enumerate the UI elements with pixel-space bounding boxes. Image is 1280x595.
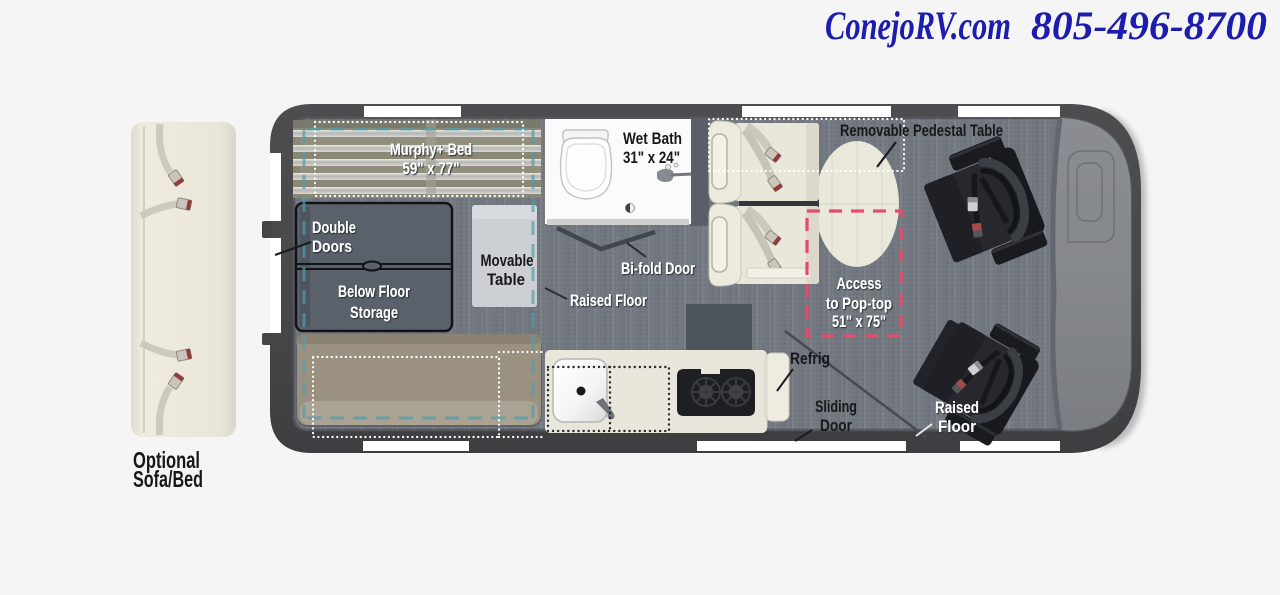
svg-text:Refrig: Refrig xyxy=(790,349,830,368)
svg-text:805-496-8700: 805-496-8700 xyxy=(1031,3,1267,48)
svg-text:Door: Door xyxy=(820,416,852,435)
svg-text:Below Floor: Below Floor xyxy=(338,282,410,301)
svg-text:Table: Table xyxy=(487,270,525,289)
svg-text:Sliding: Sliding xyxy=(815,397,857,416)
svg-text:Storage: Storage xyxy=(350,303,398,322)
svg-text:Raised Floor: Raised Floor xyxy=(570,291,647,310)
svg-text:Access: Access xyxy=(837,274,882,293)
svg-text:to Pop-top: to Pop-top xyxy=(826,294,892,313)
svg-text:Wet Bath: Wet Bath xyxy=(623,129,682,148)
svg-text:51" x 75": 51" x 75" xyxy=(832,312,886,331)
svg-text:Bi-fold Door: Bi-fold Door xyxy=(621,259,695,278)
svg-text:31" x 24": 31" x 24" xyxy=(623,148,680,167)
svg-text:Double: Double xyxy=(312,218,356,237)
svg-text:Sofa/Bed: Sofa/Bed xyxy=(133,466,203,492)
svg-text:ConejoRV.com: ConejoRV.com xyxy=(825,3,1011,48)
svg-text:Doors: Doors xyxy=(312,237,352,256)
svg-text:Raised: Raised xyxy=(935,398,979,417)
svg-text:Murphy+ Bed: Murphy+ Bed xyxy=(390,140,472,159)
svg-text:Movable: Movable xyxy=(481,251,534,270)
svg-text:Floor: Floor xyxy=(938,417,976,436)
svg-text:59" x 77": 59" x 77" xyxy=(403,159,460,178)
svg-text:Removable Pedestal Table: Removable Pedestal Table xyxy=(840,121,1003,140)
